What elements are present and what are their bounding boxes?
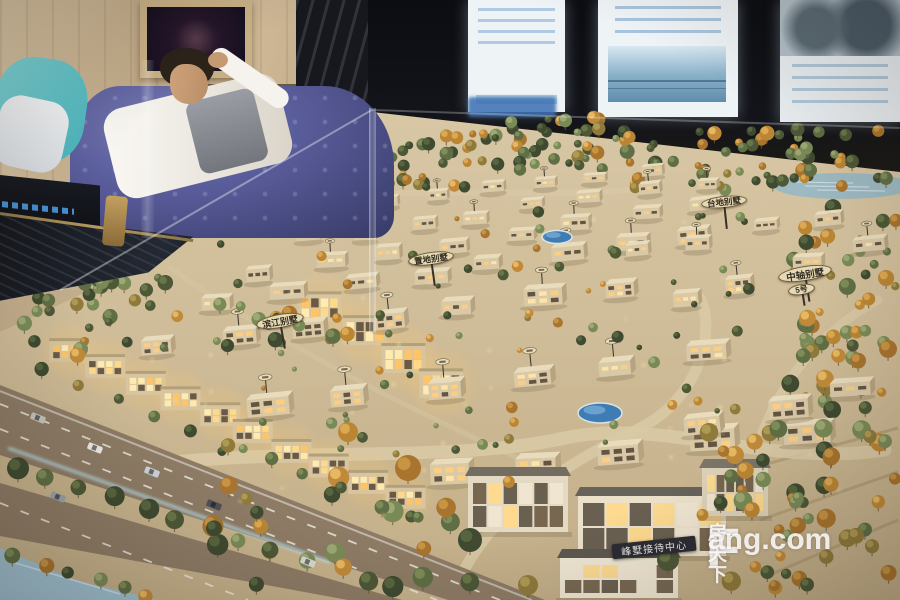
wall-poster-middle — [598, 0, 738, 117]
sign-land-villa: 置地别墅 — [407, 249, 454, 268]
wall-poster-left — [468, 0, 565, 112]
man-face — [170, 64, 208, 104]
gold-table-leg — [102, 195, 128, 247]
sign-river-villa: 滨江别墅 — [255, 310, 305, 332]
man-hand — [208, 52, 228, 68]
model-pools — [542, 231, 622, 424]
fang-logo-f: F — [706, 524, 738, 572]
fang-brand-en: ang.com — [708, 525, 831, 555]
sign-reception-center: 峰墅接待中心 — [611, 536, 696, 560]
model-lights — [151, 218, 841, 516]
wall-poster-right — [780, 0, 900, 122]
model-lit-buildings — [44, 275, 473, 522]
blue-screen-glow — [468, 97, 556, 117]
sign-axis-villa: 中轴别墅 — [777, 262, 833, 285]
sales-center-photo: 中轴别墅 5号 台地别墅 置地别墅 滨江别墅 峰墅接待中心 F 房天下 ang.… — [0, 0, 900, 600]
model-reception-buildings — [464, 459, 772, 600]
poster-landscape-image — [608, 46, 726, 102]
model-cars — [30, 412, 317, 568]
fang-brand-cn: 房天下 — [708, 524, 732, 587]
sign-axis-villa-number: 5号 — [787, 282, 815, 297]
